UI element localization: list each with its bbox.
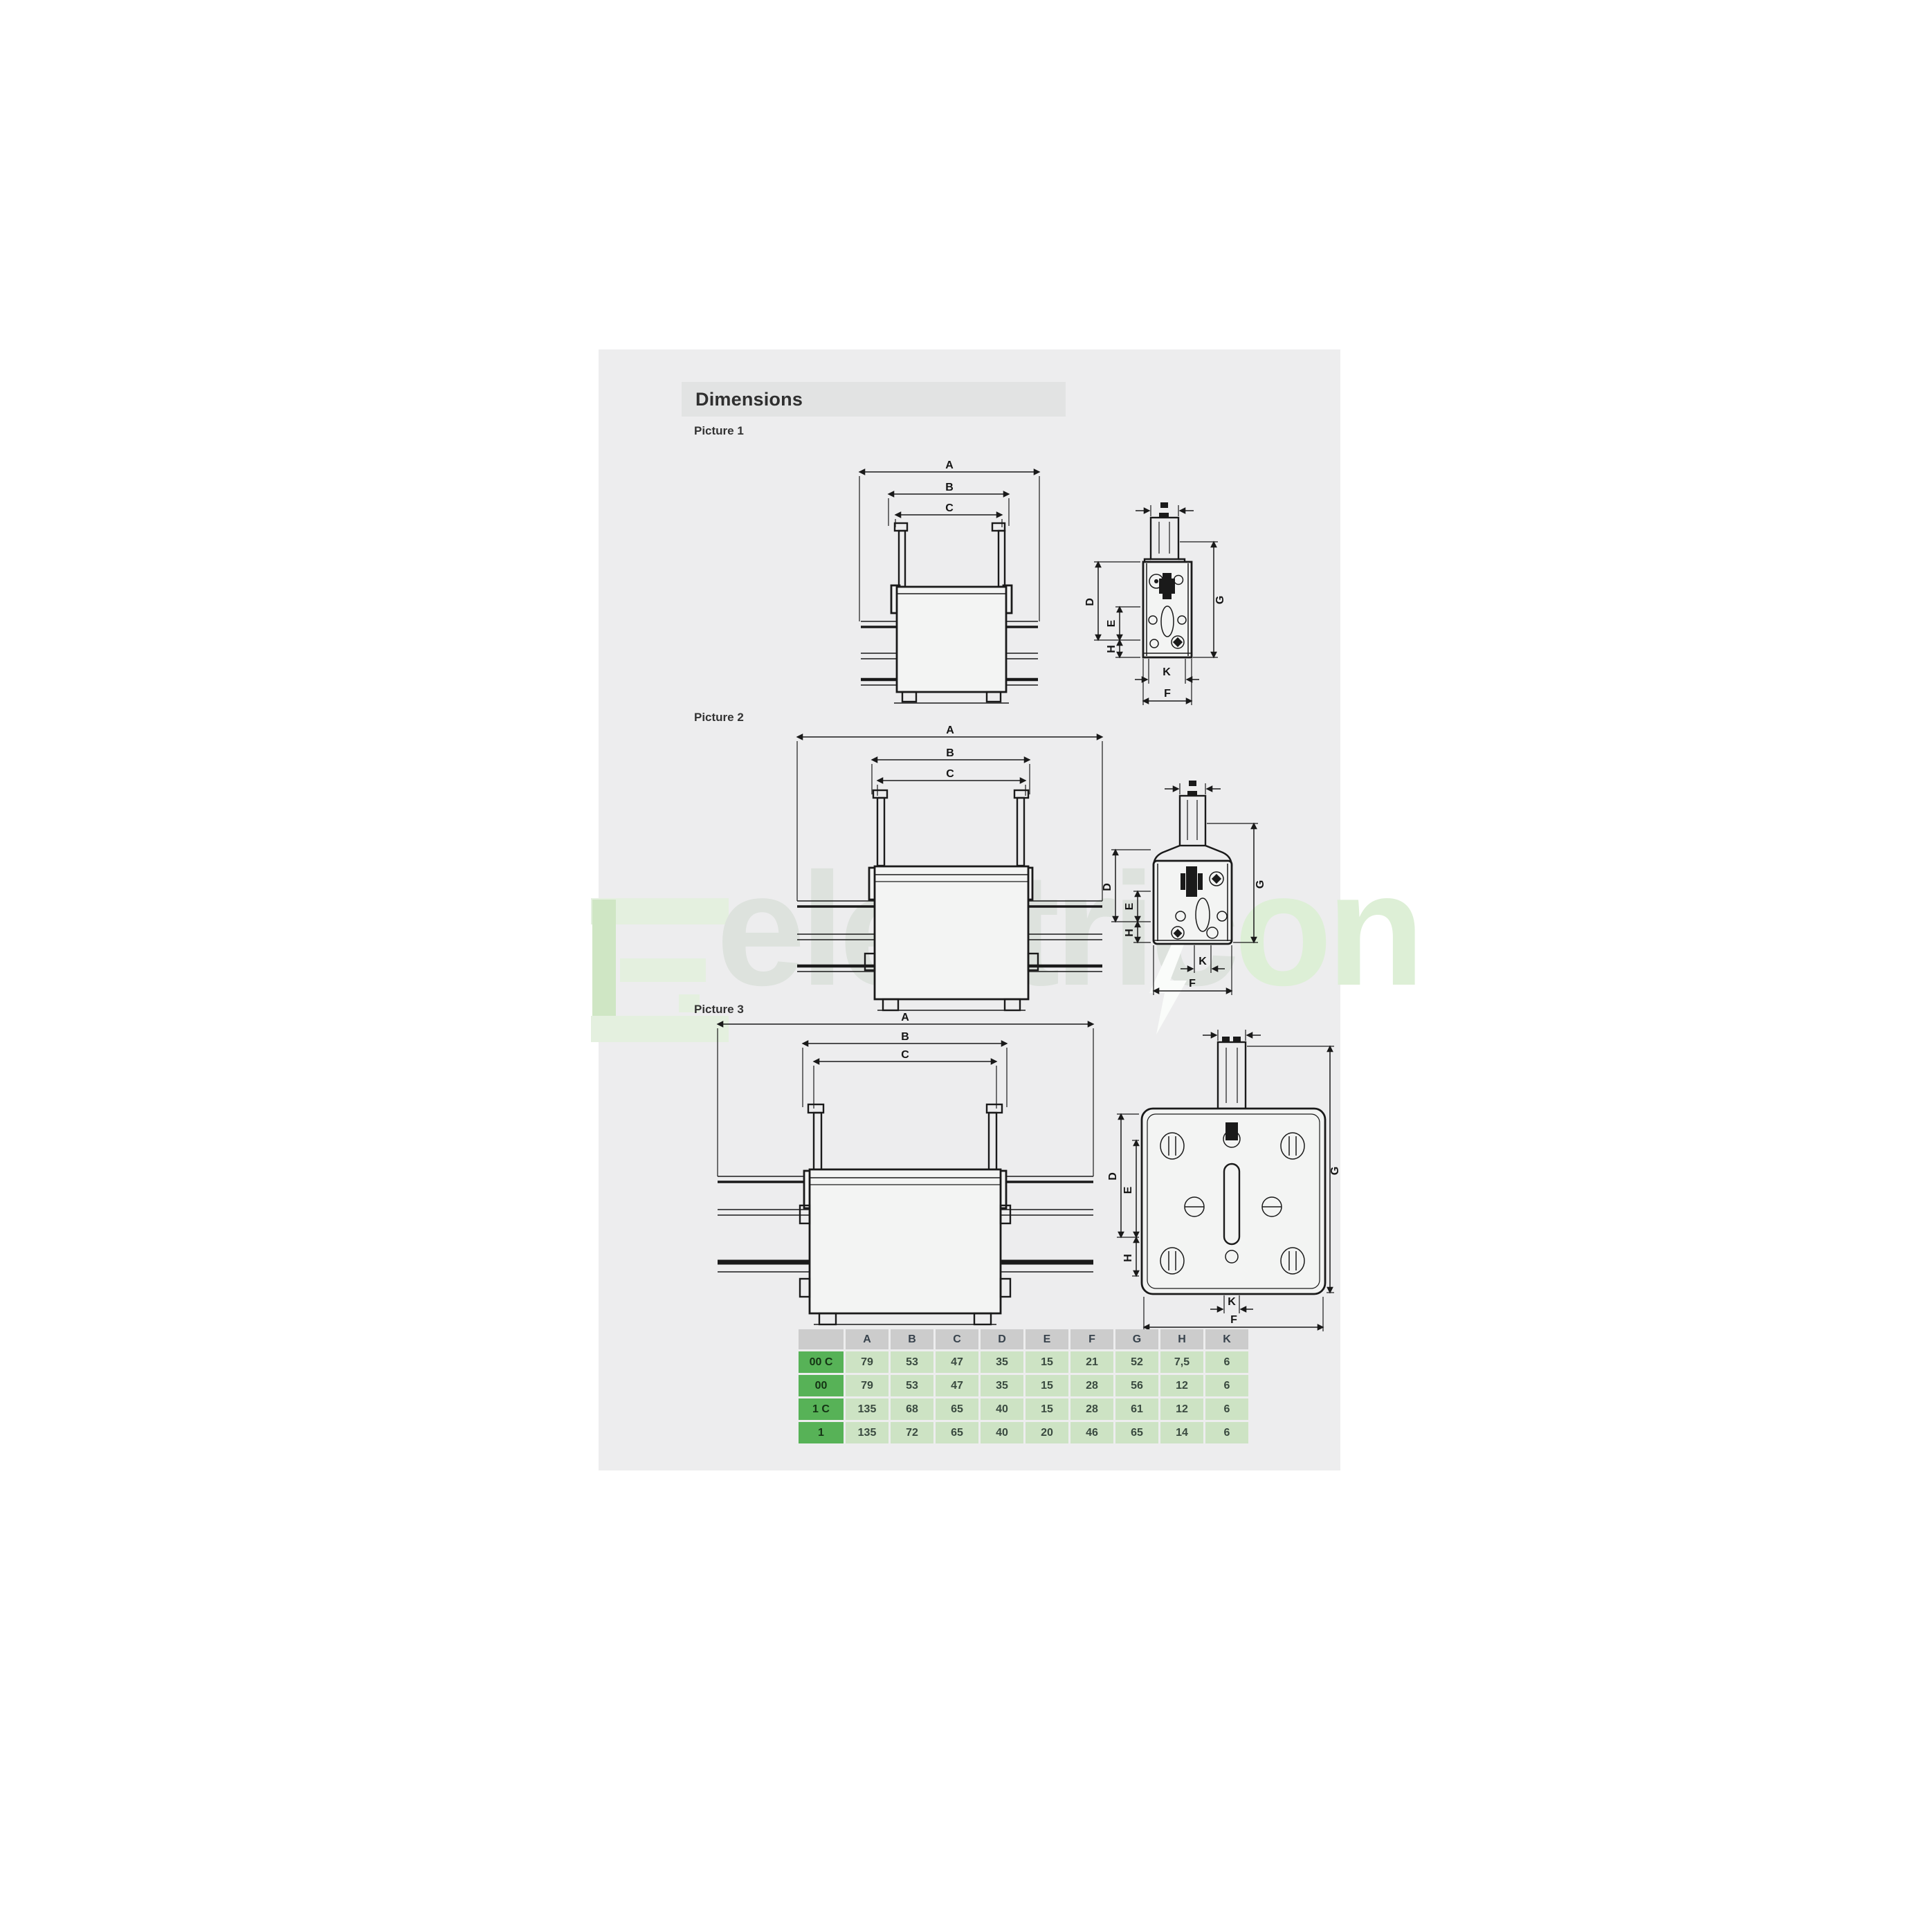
screenshot-canvas: { "header": { "title": "Dimensions" }, "… (0, 0, 1932, 1932)
table-row-header: 1 C (799, 1398, 844, 1420)
dim-label-B: B (945, 482, 954, 493)
table-cell: 6 (1205, 1398, 1248, 1420)
table-cell: 40 (981, 1398, 1023, 1420)
picture-1-side-view: D E H G K F (1084, 502, 1226, 705)
dim-label-C: C (946, 768, 954, 780)
dim-label-D: D (1107, 1172, 1119, 1181)
table-header-cell: F (1070, 1329, 1113, 1349)
table-header-cell: H (1160, 1329, 1203, 1349)
dim-label-K: K (1228, 1296, 1236, 1308)
brand-logo-icon (590, 891, 729, 1050)
table-cell: 53 (891, 1375, 933, 1396)
table-row-header: 00 C (799, 1351, 844, 1373)
table-cell: 15 (1026, 1351, 1068, 1373)
technical-drawings: .o{stroke:#1a1a1a;fill:none;stroke-width… (599, 349, 1340, 1470)
table-cell: 79 (846, 1375, 888, 1396)
table-cell: 135 (846, 1422, 888, 1443)
table-cell: 12 (1160, 1375, 1203, 1396)
picture-3-front-view: A B C (718, 1012, 1093, 1324)
table-cell: 40 (981, 1422, 1023, 1443)
page-title: Dimensions (695, 389, 803, 410)
table-cell: 15 (1026, 1375, 1068, 1396)
watermark-text-accent: on (1234, 840, 1419, 1019)
table-cell: 61 (1115, 1398, 1158, 1420)
dim-label-H: H (1122, 1254, 1134, 1262)
picture-3-label: Picture 3 (694, 1003, 744, 1017)
table-cell: 53 (891, 1351, 933, 1373)
brand-watermark: electricon (590, 891, 1393, 1050)
table-cell: 15 (1026, 1398, 1068, 1420)
dim-label-C: C (901, 1049, 909, 1061)
table-cell: 72 (891, 1422, 933, 1443)
table-header-cell: K (1205, 1329, 1248, 1349)
table-cell: 46 (1070, 1422, 1113, 1443)
picture-3-side-view: D E H G K F (1107, 1030, 1340, 1331)
dim-label-G: G (1214, 596, 1226, 604)
table-header-cell: B (891, 1329, 933, 1349)
table-cell: 6 (1205, 1375, 1248, 1396)
table-cell: 47 (936, 1351, 978, 1373)
dim-label-A: A (946, 724, 954, 736)
table-header-cell: D (981, 1329, 1023, 1349)
dim-label-G: G (1329, 1167, 1340, 1175)
dim-label-D: D (1084, 598, 1096, 606)
dim-label-K: K (1163, 666, 1171, 678)
table-cell: 28 (1070, 1398, 1113, 1420)
picture-1-label: Picture 1 (694, 424, 744, 438)
table-header-cell: A (846, 1329, 888, 1349)
dim-label-E: E (1124, 902, 1136, 910)
picture-1-front-view: A B C (859, 459, 1039, 703)
dim-label-G: G (1255, 880, 1266, 888)
dim-label-E: E (1122, 1186, 1134, 1194)
table-cell: 68 (891, 1398, 933, 1420)
table-cell: 79 (846, 1351, 888, 1373)
watermark-text-main: electric (716, 840, 1234, 1019)
picture-2-side-view: D E H G K F (1102, 781, 1266, 995)
dim-label-K: K (1199, 956, 1207, 967)
lightning-bolt-icon (1144, 945, 1192, 1035)
dim-label-H: H (1106, 645, 1118, 653)
datasheet-page: electricon Dimensions Picture 1 Picture … (599, 349, 1340, 1470)
table-corner-cell (799, 1329, 844, 1349)
table-cell: 7,5 (1160, 1351, 1203, 1373)
table-cell: 65 (1115, 1422, 1158, 1443)
table-cell: 65 (936, 1422, 978, 1443)
dimensions-table: ABCDEFGHK00 C795347351521527,56007953473… (799, 1329, 1248, 1443)
picture-2-front-view: A B C (797, 724, 1102, 1010)
table-cell: 65 (936, 1398, 978, 1420)
watermark-text: electricon (716, 850, 1419, 1010)
table-cell: 35 (981, 1351, 1023, 1373)
table-cell: 35 (981, 1375, 1023, 1396)
dim-label-D: D (1102, 883, 1113, 891)
table-cell: 135 (846, 1398, 888, 1420)
table-cell: 12 (1160, 1398, 1203, 1420)
table-cell: 21 (1070, 1351, 1113, 1373)
dim-label-H: H (1124, 929, 1136, 937)
table-row-header: 1 (799, 1422, 844, 1443)
table-cell: 28 (1070, 1375, 1113, 1396)
section-header: Dimensions (682, 382, 1066, 417)
table-row-header: 00 (799, 1375, 844, 1396)
picture-2-label: Picture 2 (694, 711, 744, 724)
table-header-cell: E (1026, 1329, 1068, 1349)
dim-label-F: F (1164, 688, 1171, 700)
table-cell: 20 (1026, 1422, 1068, 1443)
table-header-cell: C (936, 1329, 978, 1349)
table-header-cell: G (1115, 1329, 1158, 1349)
dim-label-A: A (901, 1012, 909, 1023)
dim-label-F: F (1189, 978, 1196, 990)
table-cell: 14 (1160, 1422, 1203, 1443)
dim-label-B: B (946, 747, 954, 759)
dim-label-E: E (1106, 619, 1118, 627)
table-cell: 47 (936, 1375, 978, 1396)
dim-label-B: B (901, 1031, 909, 1043)
table-cell: 52 (1115, 1351, 1158, 1373)
dim-label-F: F (1230, 1314, 1237, 1326)
dim-label-C: C (945, 502, 954, 514)
dim-label-A: A (945, 459, 954, 471)
table-cell: 6 (1205, 1351, 1248, 1373)
table-cell: 6 (1205, 1422, 1248, 1443)
table-cell: 56 (1115, 1375, 1158, 1396)
